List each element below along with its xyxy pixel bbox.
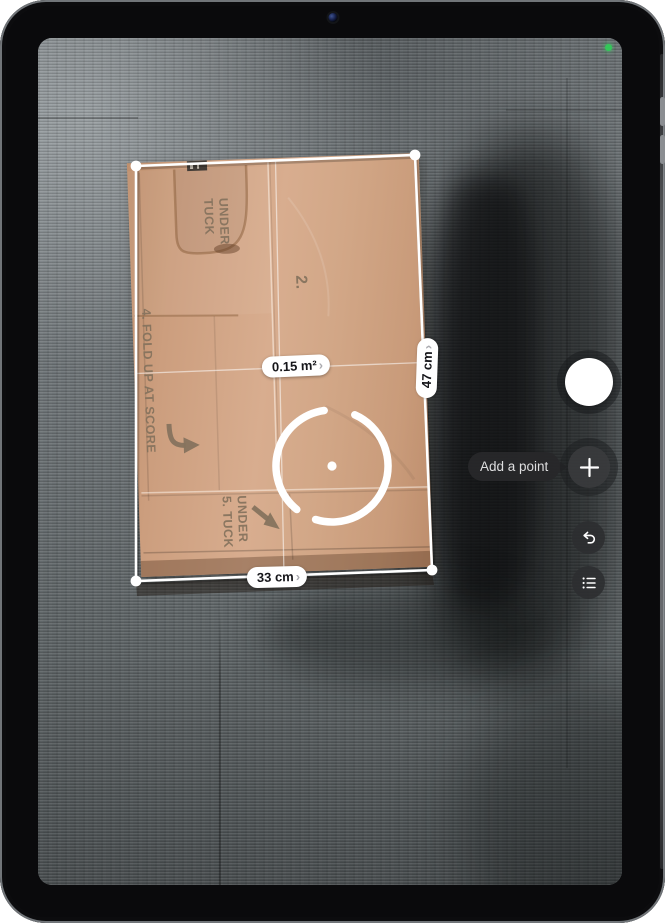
width-measurement-pill[interactable]: 33 cm › (247, 566, 308, 589)
shutter-button[interactable] (565, 358, 613, 406)
plus-icon (578, 456, 601, 479)
chevron-right-icon: › (296, 568, 301, 583)
volume-down-button (660, 135, 665, 164)
width-value: 33 cm (257, 569, 294, 585)
tooltip-label: Add a point (480, 459, 548, 474)
volume-up-button (660, 97, 665, 126)
chevron-right-icon: › (318, 357, 323, 372)
metal-edge (660, 54, 664, 869)
undo-button[interactable] (572, 521, 605, 554)
camera-viewfinder: TUCK UNDER 2. 4. FOLD UP AT SCORE 5. TUC… (38, 38, 622, 885)
list-icon (580, 574, 598, 592)
undo-icon (580, 529, 598, 547)
height-value: 47 cm (419, 351, 435, 388)
area-measurement-pill[interactable]: 0.15 m² › (261, 354, 330, 378)
box-print-tuck-under: TUCK UNDER (200, 198, 232, 257)
area-value: 0.15 m² (272, 358, 317, 375)
chevron-right-icon: › (420, 345, 435, 350)
camera-active-indicator (605, 44, 612, 51)
measurement-list-button[interactable] (572, 566, 605, 599)
box-print-step5: 5. TUCK UNDER (219, 495, 251, 560)
front-camera (328, 13, 337, 22)
add-a-point-tooltip: Add a point (468, 452, 560, 481)
box-print-panel-number: 2. (291, 275, 312, 316)
add-point-button[interactable] (568, 446, 610, 488)
height-measurement-pill[interactable]: 47 cm › (415, 338, 438, 399)
ipad-device-frame: TUCK UNDER 2. 4. FOLD UP AT SCORE 5. TUC… (0, 0, 665, 923)
